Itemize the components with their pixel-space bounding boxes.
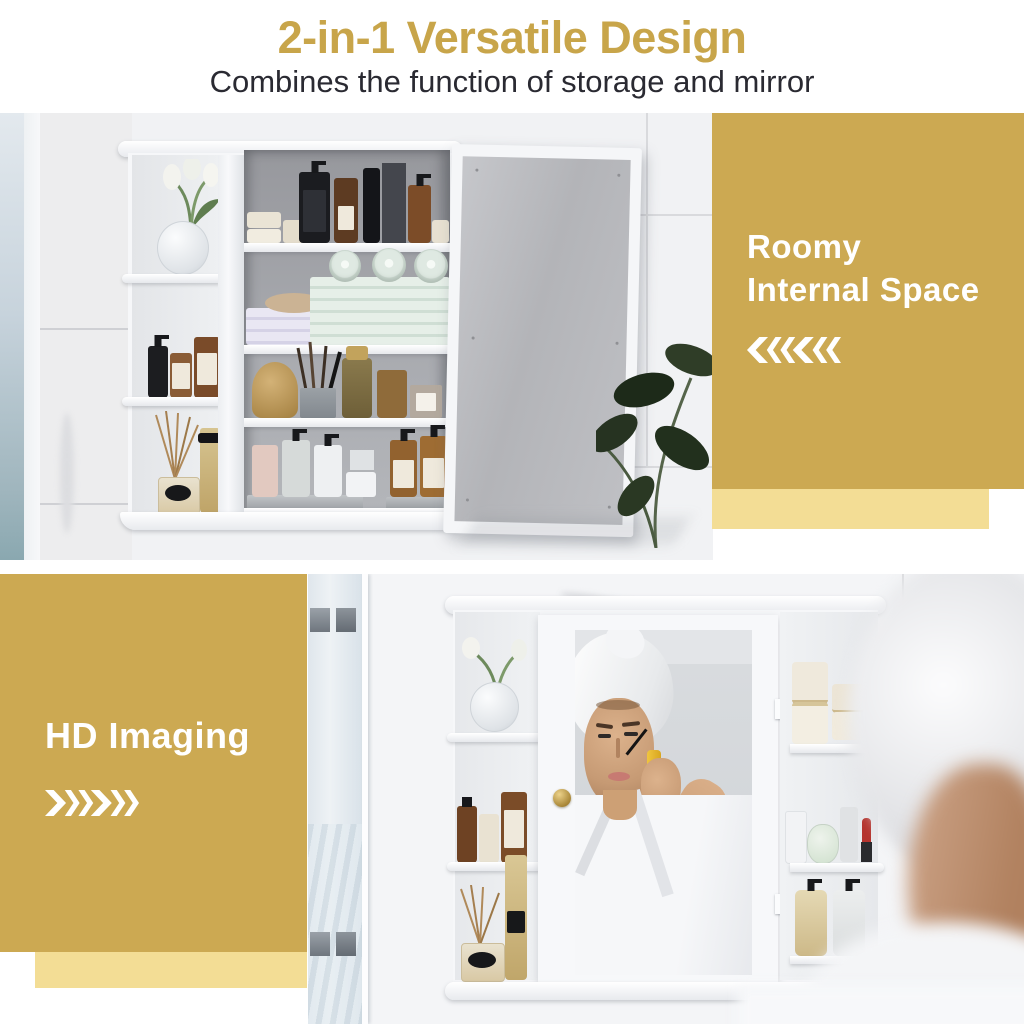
corner-shelf xyxy=(122,274,220,283)
towel-stack-mint xyxy=(310,277,450,345)
cabinet-open xyxy=(118,141,462,533)
box-white xyxy=(350,450,374,470)
bottle-cream xyxy=(479,814,499,863)
brush-cup xyxy=(300,388,336,418)
foreground-woman-robe-bottom xyxy=(738,986,1024,1024)
window-light xyxy=(0,113,24,560)
glass-edge xyxy=(362,574,368,1024)
roomy-panel-accent-strip xyxy=(712,489,989,529)
glass-clamp xyxy=(310,608,330,632)
bottle-black-dispenser xyxy=(299,172,330,243)
jar-white xyxy=(346,472,376,497)
photo-mirror-in-use xyxy=(308,574,1024,1024)
photo-open-cabinet xyxy=(0,113,713,560)
jar-cream-stack xyxy=(792,662,828,704)
bottle-amber-large xyxy=(194,337,220,398)
bottle-amber-pump-large xyxy=(390,440,417,497)
towel-roll xyxy=(372,248,406,282)
tulip-flowers xyxy=(156,159,226,231)
bottle-brown xyxy=(334,178,358,243)
eye xyxy=(624,732,638,736)
reed-diffuser-sticks xyxy=(150,411,200,479)
roomy-panel-label: Roomy Internal Space xyxy=(747,225,980,311)
hd-panel-label: HD Imaging xyxy=(45,714,250,757)
roomy-panel: Roomy Internal Space xyxy=(712,113,1024,489)
corner-shelf xyxy=(790,863,884,872)
diffuser-label xyxy=(468,952,496,968)
curtain xyxy=(24,113,40,560)
bottle-pink xyxy=(252,445,278,497)
glass-clamp xyxy=(310,932,330,956)
box-dark xyxy=(382,163,406,243)
bottle-gray xyxy=(840,807,858,862)
bottle-amber-pump xyxy=(408,185,431,243)
towel-roll xyxy=(329,250,361,282)
bottle-cream xyxy=(170,353,192,398)
bottle-frosted xyxy=(282,440,310,497)
cabinet-mirror xyxy=(445,596,886,1000)
perfume-round-gold xyxy=(252,362,298,418)
diffuser-label xyxy=(165,485,191,501)
glass-clamp xyxy=(336,932,356,956)
glass-clamp xyxy=(336,608,356,632)
triple-chevron-right-icon xyxy=(45,790,139,816)
marble-vein xyxy=(60,413,74,533)
jar-cream xyxy=(432,220,449,243)
jar-stack xyxy=(247,229,281,243)
bottle-amber-pump-large xyxy=(420,436,447,497)
lips xyxy=(608,772,630,781)
jar-cream-stack xyxy=(792,702,828,744)
roomy-line1: Roomy xyxy=(747,225,980,268)
lipstick-red xyxy=(862,818,871,842)
reed-diffuser-sticks xyxy=(457,885,503,945)
roomy-line2: Internal Space xyxy=(747,268,980,311)
cabinet-divider xyxy=(218,155,244,517)
mirror-glass xyxy=(575,630,752,975)
lipstick-base xyxy=(861,842,872,862)
jar-stack xyxy=(247,212,281,228)
hd-imaging-panel: HD Imaging xyxy=(0,574,307,952)
eyebrow xyxy=(596,723,613,729)
bottle-white-pump xyxy=(314,445,342,497)
cabinet-interior xyxy=(244,150,450,517)
bottle-amber-large xyxy=(501,792,527,863)
bottle-pump-amber-liquid xyxy=(795,890,827,956)
mirror-screws xyxy=(475,169,478,172)
glass-frost-texture xyxy=(308,824,362,1024)
glass-vase xyxy=(157,221,209,275)
flask-amber xyxy=(377,370,407,418)
door-knob-gold xyxy=(553,789,571,807)
product-marketing-image: 2-in-1 Versatile Design Combines the fun… xyxy=(0,0,1024,1024)
shower-glass-panel xyxy=(308,574,362,1024)
reflection-neck xyxy=(603,790,637,820)
triple-chevron-left-icon xyxy=(747,337,841,363)
mirror-door-closed xyxy=(538,615,778,982)
eyebrow xyxy=(622,721,640,727)
glass-vase xyxy=(470,682,519,732)
tube-black xyxy=(363,168,380,243)
bottle-white xyxy=(785,811,807,864)
candle-jar xyxy=(410,385,442,418)
page-title: 2-in-1 Versatile Design xyxy=(0,12,1024,64)
nose-shadow xyxy=(616,738,620,758)
makeup-brushes xyxy=(296,340,342,390)
eye xyxy=(598,734,611,738)
plant-leaves xyxy=(596,318,713,548)
perfume-cap-gold xyxy=(346,346,368,360)
corner-shelf xyxy=(447,733,540,742)
bottle-gold xyxy=(505,855,527,980)
page-subtitle: Combines the function of storage and mir… xyxy=(0,64,1024,100)
perfume-tall xyxy=(342,358,372,418)
corner-shelf xyxy=(122,397,220,406)
towel-roll xyxy=(414,249,448,283)
hairline xyxy=(596,700,640,710)
jar-glass-green xyxy=(807,824,839,864)
bottle-black-pump xyxy=(148,346,168,398)
bottle-amber-blackcap xyxy=(457,806,477,863)
hd-panel-accent-strip xyxy=(35,952,307,988)
interior-shelf xyxy=(244,418,450,427)
cabinet-bottom-board xyxy=(120,512,462,530)
